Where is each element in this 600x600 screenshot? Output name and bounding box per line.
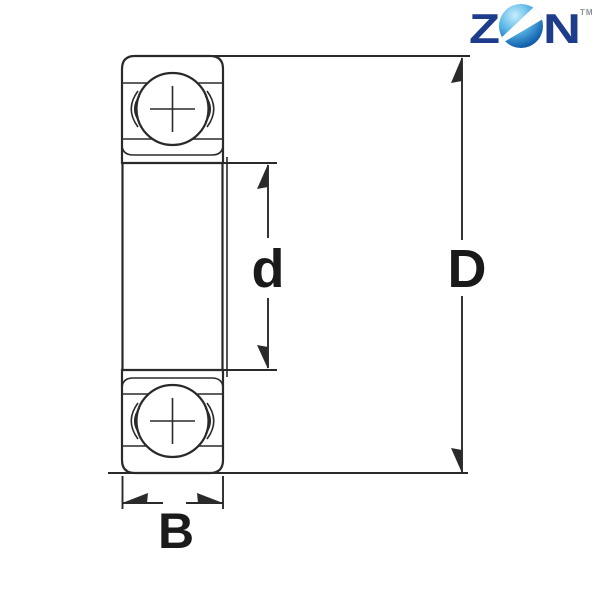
logo-globe-icon <box>499 4 548 48</box>
dimension-B-arrow-left <box>122 493 148 503</box>
label-bore-diameter: d <box>252 239 285 299</box>
logo-trademark: TM <box>580 8 594 17</box>
dimension-D-arrow-down <box>451 448 462 473</box>
label-outer-diameter: D <box>448 239 487 299</box>
logo-letter-n: N <box>543 5 581 52</box>
dimension-B: B <box>122 476 223 559</box>
bearing-diagram: d D B Z N TM <box>0 0 600 600</box>
dimension-d-arrow-down <box>257 345 268 369</box>
bearing-top-section <box>122 56 223 163</box>
bearing-bottom-section <box>122 370 223 473</box>
dimension-d-arrow-up <box>257 164 268 189</box>
top-section-bore-chamfer <box>122 146 223 155</box>
bore-silhouette-lines <box>123 163 223 370</box>
bearing-drawing <box>122 56 227 473</box>
dimension-B-arrow-right <box>197 493 223 503</box>
label-width: B <box>158 503 194 559</box>
dimension-d: d <box>223 163 285 370</box>
dimension-D-arrow-up <box>451 57 462 83</box>
logo-letter-z: Z <box>469 5 500 52</box>
bearing-diagram-page: d D B Z N TM <box>0 0 600 600</box>
zen-logo: Z N TM <box>469 4 594 52</box>
